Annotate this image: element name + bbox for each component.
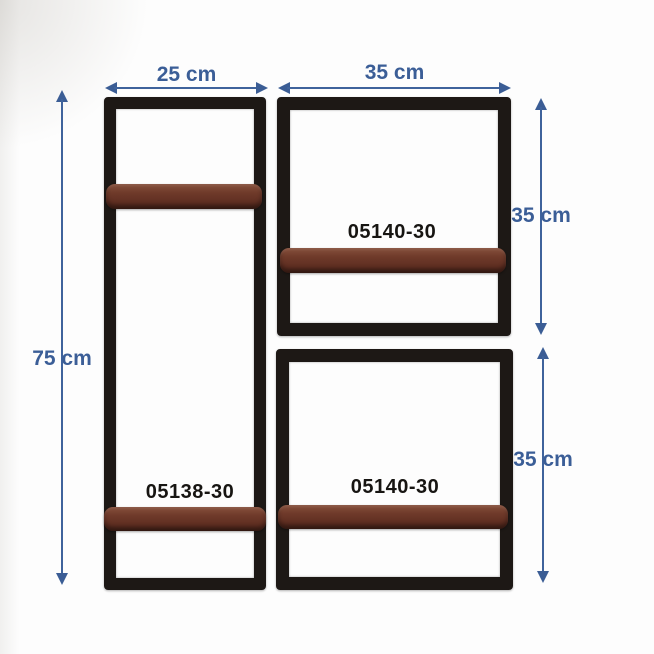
shelf-frame-top-right [277,97,511,336]
width-dimension-label-tall: 25 cm [105,64,268,85]
dimension-line [114,87,259,89]
shelf-dimension-diagram: 05138-30 05140-30 05140-30 25 cm 35 cm 7… [0,0,654,654]
wood-board-bottom-right [278,505,508,529]
height-dimension-label-tall: 75 cm [12,348,112,369]
width-dimension-label-top-right: 35 cm [278,62,511,83]
arrowhead-down-icon [56,573,68,585]
product-code-top-right: 05140-30 [322,222,462,242]
height-dimension-label-top-right: 35 cm [491,205,591,226]
product-code-bottom-right: 05140-30 [325,477,465,497]
dimension-line [61,99,63,576]
height-dimension-arrow-tall [54,90,70,585]
arrowhead-down-icon [537,571,549,583]
shelf-frame-bottom-right [276,349,513,590]
height-dimension-label-bottom-right: 35 cm [493,449,593,470]
dimension-line [287,87,502,89]
wood-board-tall-upper [106,184,262,209]
arrowhead-right-icon [499,82,511,94]
arrowhead-down-icon [535,323,547,335]
wood-board-top-right [280,248,506,273]
wood-board-tall-lower [104,507,266,531]
product-code-tall: 05138-30 [120,482,260,502]
